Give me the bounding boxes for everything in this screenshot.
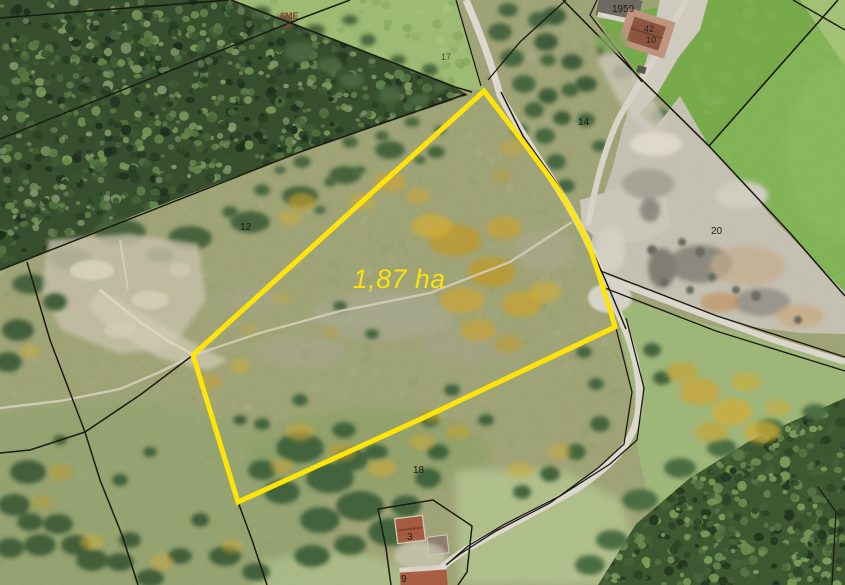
svg-text:1,87 ha: 1,87 ha	[353, 264, 446, 294]
